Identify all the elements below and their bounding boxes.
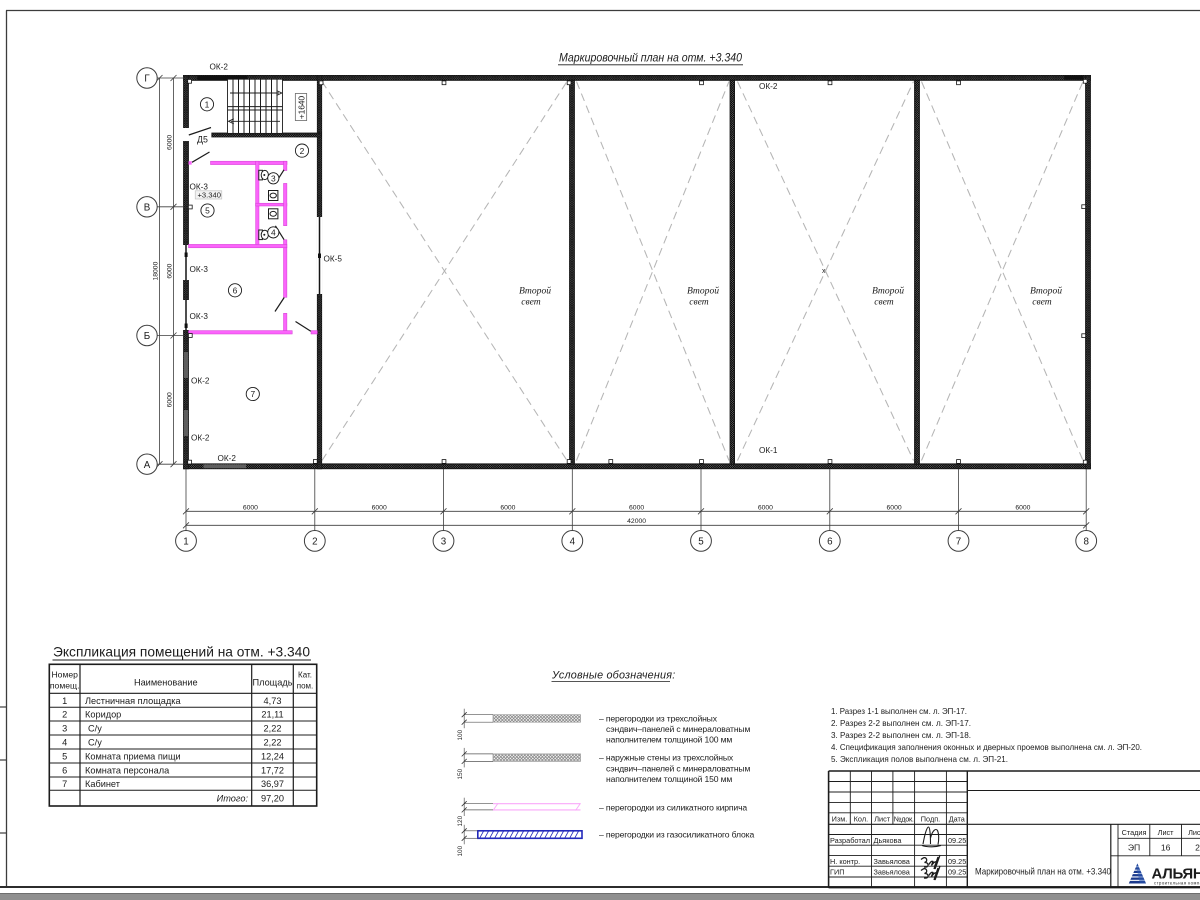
svg-text:6000: 6000 <box>629 504 644 511</box>
svg-text:Маркировочный план на отм. +3.: Маркировочный план на отм. +3.340 <box>975 866 1111 877</box>
svg-text:5: 5 <box>698 537 704 548</box>
svg-text:6000: 6000 <box>243 504 258 511</box>
svg-text:Условные обозначения:: Условные обозначения: <box>551 670 675 682</box>
svg-text:2,22: 2,22 <box>264 738 282 748</box>
svg-text:5: 5 <box>62 752 67 762</box>
svg-text:сэндвич–панелей с минераловатн: сэндвич–панелей с минераловатным <box>606 724 750 734</box>
svg-text:+1640: +1640 <box>296 96 306 120</box>
svg-text:Лестничная площадка: Лестничная площадка <box>85 696 181 706</box>
svg-text:Комната персонала: Комната персонала <box>85 765 170 775</box>
svg-text:свет: свет <box>521 297 541 308</box>
svg-text:36,97: 36,97 <box>261 779 284 789</box>
svg-text:2: 2 <box>1195 843 1200 853</box>
svg-text:18000: 18000 <box>153 261 160 280</box>
svg-text:Дьякова: Дьякова <box>874 836 903 845</box>
svg-text:Дата: Дата <box>949 815 966 824</box>
svg-text:6: 6 <box>827 537 833 548</box>
svg-text:6000: 6000 <box>758 504 773 511</box>
svg-text:Второй: Второй <box>1030 286 1062 297</box>
svg-text:100: 100 <box>457 845 464 856</box>
svg-text:помещ.: помещ. <box>50 681 80 691</box>
svg-text:8: 8 <box>1083 537 1089 548</box>
svg-text:Б: Б <box>144 331 150 342</box>
svg-text:2: 2 <box>312 537 317 548</box>
svg-text:09.25: 09.25 <box>948 836 966 845</box>
svg-text:3. Разрез 2-2 выполнен см. л.: 3. Разрез 2-2 выполнен см. л. ЭП-18. <box>831 730 971 740</box>
svg-text:Второй: Второй <box>519 286 551 297</box>
svg-text:ОК-1: ОК-1 <box>759 446 778 455</box>
svg-text:– перегородки из трехслойных: – перегородки из трехслойных <box>599 714 718 724</box>
svg-text:В: В <box>144 202 151 213</box>
svg-text:3: 3 <box>271 173 276 183</box>
svg-text:– перегородки из газосиликатно: – перегородки из газосиликатного блока <box>599 829 754 839</box>
svg-text:А: А <box>144 460 151 471</box>
svg-text:строительная компания: строительная компания <box>1154 880 1200 885</box>
svg-text:Д5: Д5 <box>197 135 208 145</box>
svg-text:Кабинет: Кабинет <box>85 779 121 789</box>
svg-text:ОК-3: ОК-3 <box>190 265 209 274</box>
svg-text:ОК-2: ОК-2 <box>191 434 210 443</box>
svg-text:– наружные стены из трехслойны: – наружные стены из трехслойных <box>599 753 734 763</box>
svg-text:ЭП: ЭП <box>1128 843 1140 853</box>
svg-text:ОК-5: ОК-5 <box>324 255 343 264</box>
svg-text:ГИП: ГИП <box>830 868 844 877</box>
svg-text:№док.: №док. <box>894 815 914 824</box>
svg-text:17,72: 17,72 <box>261 765 284 775</box>
svg-text:5: 5 <box>205 206 210 216</box>
svg-text:120: 120 <box>457 815 464 826</box>
svg-text:09.25: 09.25 <box>948 868 966 877</box>
svg-text:Экспликация помещений на отм.: Экспликация помещений на отм. +3.340 <box>53 645 310 660</box>
svg-text:1: 1 <box>183 537 188 548</box>
svg-text:6: 6 <box>62 765 67 775</box>
svg-text:7: 7 <box>62 779 67 789</box>
svg-text:Итого:: Итого: <box>217 794 249 804</box>
svg-text:4,73: 4,73 <box>264 696 282 706</box>
svg-text:Лист: Лист <box>1188 828 1200 837</box>
svg-text:наполнителем толщиной 100 мм: наполнителем толщиной 100 мм <box>606 735 732 745</box>
svg-text:1: 1 <box>62 696 67 706</box>
svg-text:97,20: 97,20 <box>261 794 284 804</box>
svg-text:Кат.: Кат. <box>298 671 312 680</box>
svg-text:x: x <box>822 268 826 275</box>
svg-text:7: 7 <box>956 537 961 548</box>
svg-text:3: 3 <box>441 537 447 548</box>
svg-text:свет: свет <box>874 297 894 308</box>
svg-text:2. Разрез 2-2 выполнен см. л.: 2. Разрез 2-2 выполнен см. л. ЭП-17. <box>831 718 971 728</box>
svg-text:Комната приема пищи: Комната приема пищи <box>85 752 181 762</box>
svg-text:Второй: Второй <box>687 286 719 297</box>
svg-text:Лист: Лист <box>874 815 891 824</box>
svg-text:Стадия: Стадия <box>1122 828 1147 837</box>
svg-text:150: 150 <box>457 768 464 779</box>
svg-text:Коридор: Коридор <box>85 710 121 720</box>
svg-text:6000: 6000 <box>1015 504 1030 511</box>
svg-text:4. Спецификация заполнения око: 4. Спецификация заполнения оконных и две… <box>831 742 1142 752</box>
svg-text:наполнителем толщиной 150 мм: наполнителем толщиной 150 мм <box>606 774 732 784</box>
svg-text:Изм.: Изм. <box>832 815 848 824</box>
svg-text:6000: 6000 <box>500 504 515 511</box>
svg-text:свет: свет <box>1032 297 1052 308</box>
svg-text:Наименование: Наименование <box>134 678 198 688</box>
svg-text:4: 4 <box>62 738 67 748</box>
svg-text:ОК-3: ОК-3 <box>190 312 209 321</box>
svg-text:сэндвич–панелей с минераловатн: сэндвич–панелей с минераловатным <box>606 763 750 773</box>
svg-text:С/у: С/у <box>88 738 102 748</box>
svg-text:Кол.: Кол. <box>854 815 868 824</box>
svg-text:1: 1 <box>205 100 210 110</box>
svg-text:Лист: Лист <box>1158 828 1175 837</box>
svg-text:12,24: 12,24 <box>261 752 284 762</box>
svg-text:6000: 6000 <box>372 504 387 511</box>
svg-text:6000: 6000 <box>167 263 174 278</box>
svg-text:4: 4 <box>271 228 276 238</box>
svg-text:Подп.: Подп. <box>921 815 940 824</box>
svg-text:3: 3 <box>62 724 67 734</box>
svg-text:100: 100 <box>457 729 464 740</box>
svg-text:6000: 6000 <box>167 135 174 150</box>
svg-text:ОК-2: ОК-2 <box>210 63 229 72</box>
svg-text:пом.: пом. <box>297 682 314 691</box>
svg-text:7: 7 <box>250 389 255 399</box>
svg-text:6000: 6000 <box>887 504 902 511</box>
svg-text:Разработал: Разработал <box>830 836 870 845</box>
svg-text:ОК-2: ОК-2 <box>759 82 778 91</box>
svg-text:ОК-2: ОК-2 <box>191 377 210 386</box>
svg-text:ОК-2: ОК-2 <box>218 454 237 463</box>
svg-text:21,11: 21,11 <box>261 710 283 720</box>
svg-text:Площадь: Площадь <box>253 678 293 688</box>
svg-text:2: 2 <box>62 710 67 720</box>
svg-text:Н. контр.: Н. контр. <box>830 857 860 866</box>
svg-text:09.25: 09.25 <box>948 857 966 866</box>
svg-text:С/у: С/у <box>88 724 102 734</box>
svg-text:Завьялова: Завьялова <box>874 857 911 866</box>
svg-text:2: 2 <box>300 146 305 156</box>
svg-text:Завьялова: Завьялова <box>874 868 911 877</box>
svg-text:16: 16 <box>1161 843 1171 853</box>
svg-text:– перегородки из силикатного к: – перегородки из силикатного кирпича <box>599 802 747 812</box>
svg-text:1. Разрез 1-1 выполнен см. л.: 1. Разрез 1-1 выполнен см. л. ЭП-17. <box>831 706 967 716</box>
svg-text:2,22: 2,22 <box>264 724 282 734</box>
svg-text:4: 4 <box>570 537 576 548</box>
svg-text:свет: свет <box>689 297 709 308</box>
svg-text:Г: Г <box>144 74 150 85</box>
svg-text:+3.340: +3.340 <box>198 191 221 200</box>
svg-text:Второй: Второй <box>872 286 904 297</box>
svg-text:42000: 42000 <box>627 518 646 525</box>
svg-text:Номер: Номер <box>51 670 78 680</box>
svg-text:Маркировочный план на отм. +3.: Маркировочный план на отм. +3.340 <box>559 53 743 65</box>
svg-text:6000: 6000 <box>167 392 174 407</box>
svg-text:6: 6 <box>233 286 238 296</box>
svg-text:5. Экспликация полов выполнена: 5. Экспликация полов выполнена см. л. ЭП… <box>831 754 1008 764</box>
